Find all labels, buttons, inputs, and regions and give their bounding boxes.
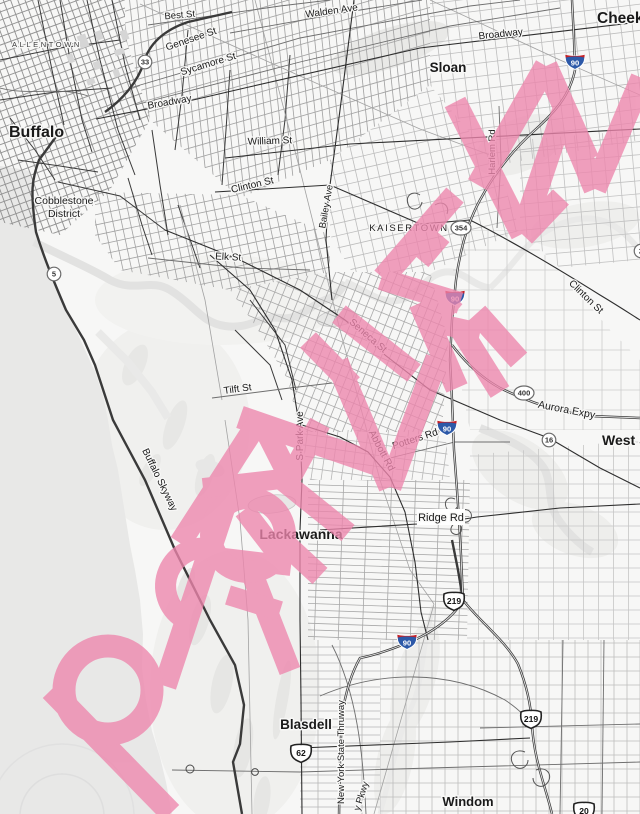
- svg-text:ALLENTOWN: ALLENTOWN: [12, 40, 82, 49]
- svg-text:Sloan: Sloan: [430, 60, 467, 75]
- svg-text:New York State Thruway: New York State Thruway: [336, 700, 347, 804]
- svg-text:Ridge Rd: Ridge Rd: [418, 512, 464, 524]
- svg-text:District: District: [48, 208, 80, 220]
- svg-text:62: 62: [296, 748, 306, 758]
- svg-text:Elk St: Elk St: [215, 251, 242, 263]
- svg-text:90: 90: [403, 639, 411, 648]
- svg-text:400: 400: [518, 389, 531, 398]
- svg-text:William St: William St: [248, 135, 293, 148]
- svg-text:219: 219: [447, 596, 462, 606]
- svg-text:5: 5: [52, 270, 56, 279]
- svg-text:Blasdell: Blasdell: [280, 717, 332, 732]
- svg-text:219: 219: [524, 714, 539, 724]
- svg-text:354: 354: [455, 224, 468, 233]
- svg-text:33: 33: [141, 58, 149, 67]
- svg-text:Windom: Windom: [442, 794, 493, 809]
- svg-text:16: 16: [545, 436, 553, 445]
- svg-text:20: 20: [579, 806, 589, 814]
- svg-text:90: 90: [443, 425, 451, 434]
- svg-text:Buffalo: Buffalo: [9, 124, 64, 141]
- svg-text:Cobblestone: Cobblestone: [35, 195, 94, 207]
- svg-text:West Seneca: West Seneca: [602, 432, 640, 448]
- svg-text:Cheektowaga: Cheektowaga: [597, 10, 640, 27]
- svg-text:90: 90: [571, 59, 579, 68]
